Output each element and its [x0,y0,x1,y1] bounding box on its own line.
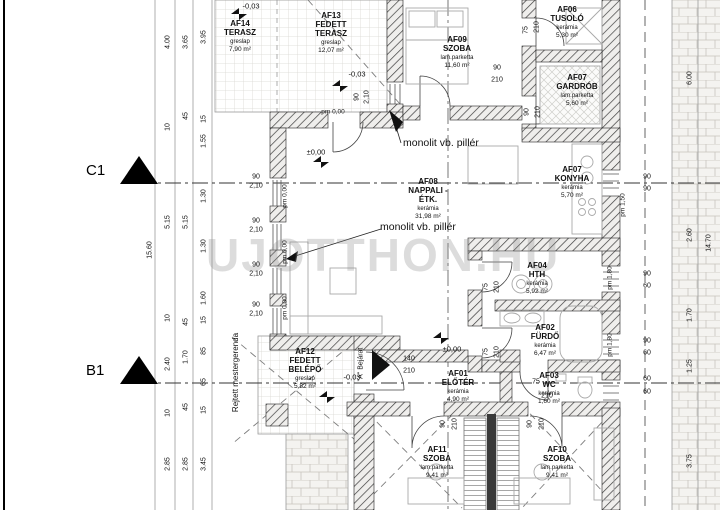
image-left-border [3,0,5,510]
watermark: UJOTTHON.HU [206,228,560,282]
axis-marker-triangles [120,156,158,384]
floor-plan-canvas: UJOTTHON.HU C1 B1 monolit vb. pillér mon… [0,0,720,510]
party-wall [487,414,496,510]
